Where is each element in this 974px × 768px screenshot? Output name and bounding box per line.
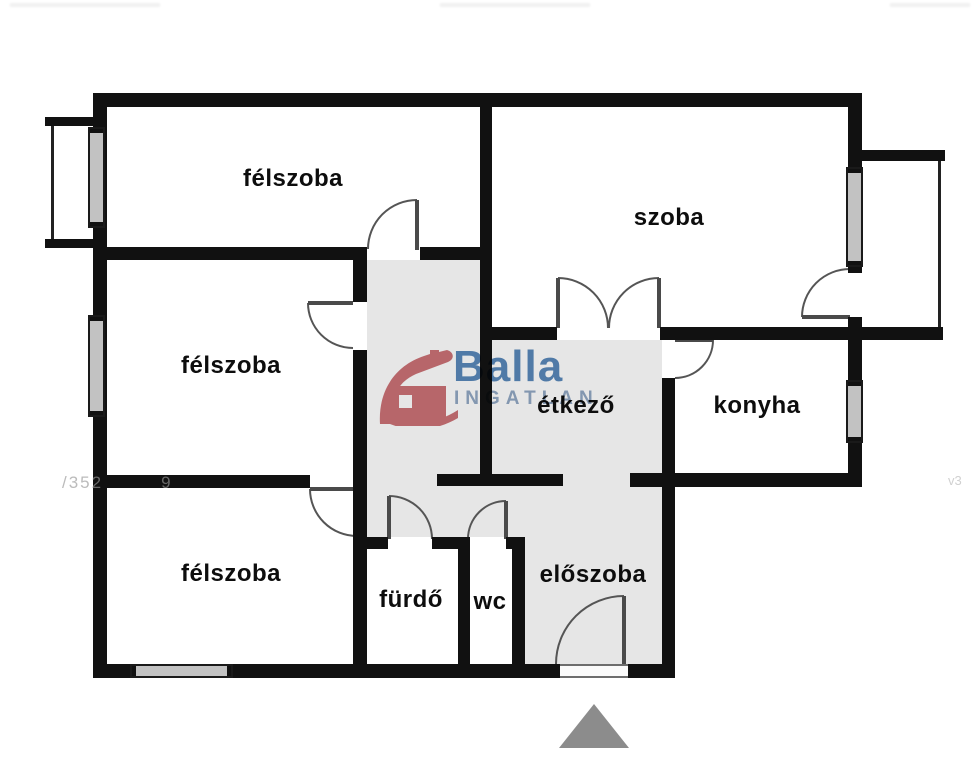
wall-szoba-bottom-right <box>660 327 943 340</box>
wall-outer-top <box>93 93 862 107</box>
window-felszoba2 <box>88 315 105 417</box>
balcony-right-edge <box>938 150 941 340</box>
room-label-felszoba-2: félszoba <box>181 352 281 380</box>
wall-outer-right-stub <box>848 267 862 273</box>
door-arc-felszoba1 <box>368 200 417 249</box>
door-arc-double-right <box>609 278 659 328</box>
wall-corridor-left-lower <box>353 350 367 678</box>
room-label-konyha: konyha <box>713 392 800 420</box>
watermark-smudge-2 <box>440 3 590 7</box>
balcony-left-edge <box>51 117 54 248</box>
window-felszoba3 <box>130 664 233 678</box>
room-label-furdo: fürdő <box>379 586 443 614</box>
balla-house-icon <box>374 350 460 426</box>
wall-konyha-bottom <box>630 473 862 487</box>
door-arc-felszoba2 <box>308 303 353 348</box>
door-arc-double-left <box>558 278 608 328</box>
wall-furdo-top-right <box>432 537 458 549</box>
wall-furdo-wc <box>458 537 470 664</box>
wall-felszoba1-bottom <box>93 247 367 260</box>
watermark-lot-number: /3529 <box>62 473 173 493</box>
balcony-right-top-rail <box>862 150 945 161</box>
window-szoba <box>846 167 863 267</box>
wall-hall-bar <box>437 474 563 486</box>
window-felszoba1 <box>88 127 105 228</box>
wall-wc-eloszoba <box>512 537 525 664</box>
floor-plan: félszoba szoba félszoba étkező konyha fé… <box>0 0 974 768</box>
door-arc-szoba-balcony <box>802 269 850 317</box>
eloszoba-floor <box>525 537 662 664</box>
watermark-smudge-3 <box>890 3 970 7</box>
balcony-left-top-rail <box>45 117 93 126</box>
door-arc-felszoba3 <box>310 489 357 536</box>
north-arrow-icon <box>559 704 629 748</box>
watermark-lot-fragment: /352 <box>62 473 103 492</box>
logo-brand-text: Balla <box>453 342 563 392</box>
watermark-lot-fragment2: 9 <box>161 473 172 492</box>
watermark-corner: v3 <box>948 473 962 488</box>
wall-furdo-top-left <box>367 537 388 549</box>
wall-etkezo-konyha <box>662 378 675 678</box>
room-label-eloszoba: előszoba <box>540 561 647 589</box>
wall-szoba-bottom-left <box>480 327 557 340</box>
logo-subtitle-text: INGATLAN <box>454 388 599 410</box>
wall-felszoba1-bottom-right <box>420 247 492 260</box>
room-label-felszoba-1: félszoba <box>243 165 343 193</box>
watermark-smudge-1 <box>10 3 160 7</box>
balla-ingatlan-logo: Balla INGATLAN <box>374 350 624 426</box>
door-arc-konyha <box>675 340 713 378</box>
room-label-felszoba-3: félszoba <box>181 560 281 588</box>
wall-outer-right-upper <box>848 93 862 167</box>
window-konyha <box>846 380 863 443</box>
entry-threshold <box>560 664 628 678</box>
room-label-wc: wc <box>473 588 506 616</box>
room-label-szoba: szoba <box>634 204 705 232</box>
balcony-left-bottom-rail <box>45 239 93 248</box>
wall-wc-top-right <box>506 537 525 549</box>
